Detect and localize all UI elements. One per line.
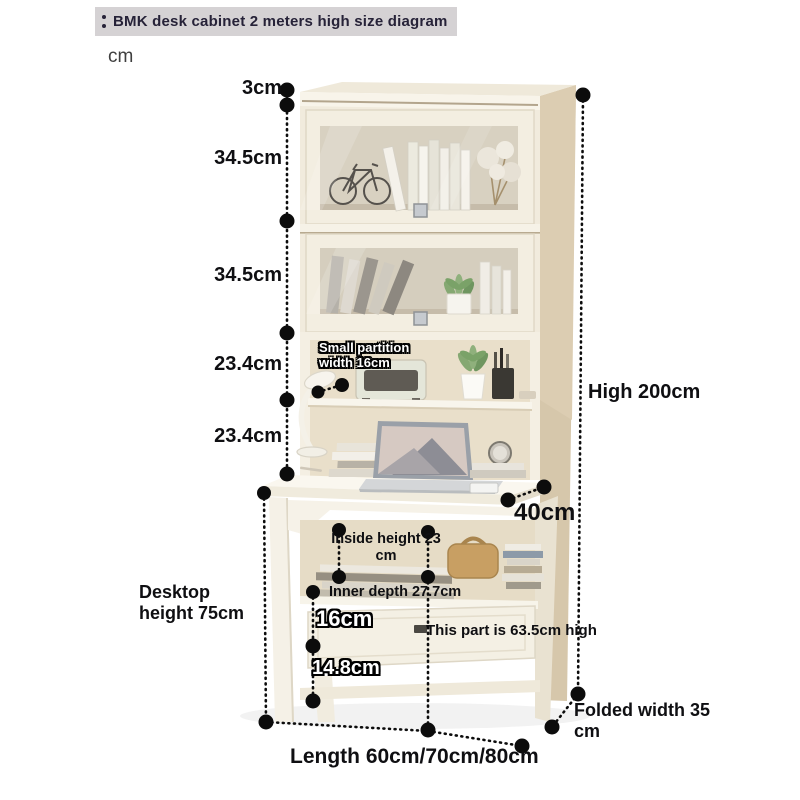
dim-partition-line2: width 16cm	[319, 356, 409, 371]
small-tray	[519, 391, 536, 399]
dim-upper-shelf: 23.4cm	[193, 353, 282, 376]
dim-folded-line2: cm	[574, 721, 710, 742]
desktop-height-line	[264, 493, 266, 722]
page-title: BMK desk cabinet 2 meters high size diag…	[113, 13, 448, 30]
bottom-stretcher	[300, 680, 540, 700]
dim-bottom-gap: 14.8cm	[312, 657, 380, 680]
dim-inside-height-line2: cm	[327, 548, 445, 565]
title-marker-icon	[102, 15, 106, 28]
dim-folded-line1: Folded width 35	[574, 700, 710, 721]
dim-desktop-line1: Desktop	[139, 582, 244, 603]
dim-inner-depth: Inner depth 27.7cm	[329, 584, 461, 601]
dim-desktop-line2: height 75cm	[139, 603, 244, 624]
cabinet-side-sheen	[540, 85, 576, 420]
dim-drawer-height: 16cm	[316, 606, 372, 631]
satchel-bag	[448, 538, 498, 578]
dim-total-height: High 200cm	[588, 381, 700, 404]
upper-door-handle	[414, 204, 427, 217]
dim-desktop-height: Desktop height 75cm	[139, 582, 244, 623]
dim-lower-door: 34.5cm	[193, 264, 282, 287]
dim-partition-line1: Small partition	[319, 341, 409, 356]
unit-label: cm	[108, 46, 133, 68]
desk-books-right	[470, 463, 526, 478]
dim-inside-height: Inside height 23 cm	[327, 531, 445, 564]
dim-partition: Small partition width 16cm	[319, 341, 409, 371]
dim-top-thickness: 3cm	[193, 77, 282, 100]
phone	[470, 483, 498, 493]
lower-door-books-right	[480, 262, 511, 314]
dim-length: Length 60cm/70cm/80cm	[290, 745, 539, 769]
round-mirror	[489, 442, 511, 464]
dim-folded-width: Folded width 35 cm	[574, 700, 710, 741]
lower-door-handle	[414, 312, 427, 325]
lower-glass-door	[306, 234, 534, 332]
size-diagram-image: BMK desk cabinet 2 meters high size diag…	[0, 0, 800, 800]
cabinet-divider	[300, 224, 540, 233]
upper-glass-door	[300, 110, 534, 224]
dim-part-height: This part is 63.5cm high	[426, 622, 597, 639]
dim-desk-depth: 40cm	[514, 499, 575, 527]
dim-lower-shelf: 23.4cm	[193, 425, 282, 448]
total-height-line	[578, 95, 583, 694]
title-bar: BMK desk cabinet 2 meters high size diag…	[95, 7, 457, 36]
dim-upper-door: 34.5cm	[193, 147, 282, 170]
dim-inside-height-line1: Inside height 23	[327, 531, 445, 548]
